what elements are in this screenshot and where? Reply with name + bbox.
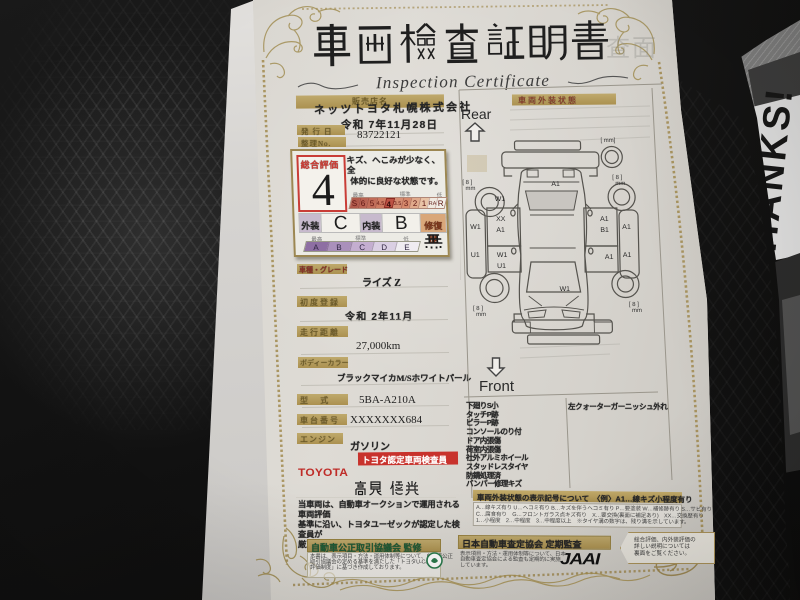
svg-text:U1: U1 bbox=[497, 263, 506, 270]
svg-text:W1: W1 bbox=[470, 224, 481, 231]
svg-text:A1: A1 bbox=[605, 254, 614, 261]
svg-text:A1: A1 bbox=[551, 181, 560, 188]
svg-text:A1: A1 bbox=[600, 216, 609, 223]
svg-text:mm: mm bbox=[632, 308, 642, 314]
svg-text:[ mm]: [ mm] bbox=[600, 138, 615, 144]
svg-text:U1: U1 bbox=[471, 252, 480, 259]
svg-text:A1: A1 bbox=[622, 224, 631, 231]
svg-text:mm: mm bbox=[465, 186, 475, 192]
svg-text:W1: W1 bbox=[497, 252, 508, 259]
svg-text:W1: W1 bbox=[495, 196, 506, 203]
svg-text:mm: mm bbox=[615, 181, 625, 187]
svg-text:mm: mm bbox=[476, 312, 486, 318]
svg-text:B1: B1 bbox=[600, 227, 609, 234]
svg-text:A1: A1 bbox=[496, 227, 505, 234]
svg-text:A1: A1 bbox=[623, 252, 632, 259]
svg-text:XX: XX bbox=[496, 216, 506, 223]
svg-text:W1: W1 bbox=[559, 286, 570, 293]
